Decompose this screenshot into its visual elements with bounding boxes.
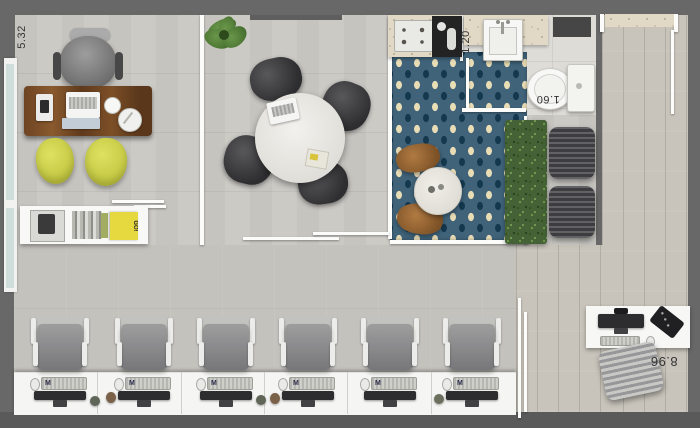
wall-corridor-divider <box>596 15 602 245</box>
desk-divider <box>181 372 182 414</box>
dimension-bath-width: 1.20 <box>459 22 473 62</box>
entry-door-leaf <box>671 30 674 114</box>
desk-divider <box>97 372 98 414</box>
desk-divider <box>347 372 348 414</box>
faucet-handle-left <box>496 20 500 24</box>
outer-wall-right <box>688 0 700 428</box>
monitor-2 <box>118 391 170 400</box>
vertical-garden-hedge <box>505 120 547 244</box>
monitor-stand-1 <box>53 400 67 407</box>
desk-plant-small <box>90 396 100 406</box>
floor-plan: 5.32 GO! <box>0 0 700 428</box>
dimension-plan-width: 8.96 <box>640 354 688 368</box>
entry-threshold <box>605 14 674 27</box>
entry-door-post-right <box>674 14 678 32</box>
monitor-3 <box>200 391 252 400</box>
book-green <box>101 213 108 238</box>
desk-ornament <box>270 393 280 404</box>
window-glass-lower <box>6 208 14 288</box>
desk-phone-screen <box>40 100 49 113</box>
outer-wall-left-bottom <box>0 288 14 412</box>
laptop-keyboard <box>69 97 97 109</box>
monitor-stand-4 <box>301 400 315 407</box>
plant-center <box>219 30 229 40</box>
mouse-3 <box>196 378 206 391</box>
monitor-5 <box>364 391 416 400</box>
lounge-pouf-2 <box>549 186 595 238</box>
desk-plant-small <box>256 395 266 405</box>
desk-plant-small <box>434 394 444 404</box>
outer-wall-left-top <box>0 0 15 62</box>
cafe-cup-1 <box>428 186 435 193</box>
desk-ornament <box>106 392 116 403</box>
exec-door-panel-a <box>112 200 164 203</box>
keyboard-3: M <box>207 377 253 390</box>
monitor-stand-3 <box>219 400 233 407</box>
wall-exec-meeting <box>200 15 204 245</box>
mouse-2 <box>114 378 124 391</box>
reception-monitor-stand <box>614 328 628 334</box>
cafe-cup-2 <box>438 184 444 190</box>
reception-monitor <box>598 314 644 328</box>
wall-bathroom-south <box>462 108 526 112</box>
keyboard-1: M <box>41 377 87 390</box>
keyboard-4: M <box>289 377 335 390</box>
office-sliding-door-b <box>524 312 527 412</box>
bathroom-door-leaf <box>466 58 469 108</box>
entry-door-post-left <box>600 14 604 32</box>
bathroom-niche <box>553 17 591 37</box>
monitor-stand-5 <box>383 400 397 407</box>
bottle-tall <box>447 28 456 50</box>
faucet-handle-right <box>506 20 510 24</box>
mouse-5 <box>360 378 370 391</box>
books-row <box>72 211 102 239</box>
dimension-room-width: 5.32 <box>15 17 29 57</box>
monitor-stand-2 <box>137 400 151 407</box>
keyboard-5: M <box>371 377 417 390</box>
executive-chair-arm-right <box>115 52 123 80</box>
executive-chair <box>60 36 116 88</box>
beam-meeting-room <box>250 15 342 20</box>
desk-divider <box>264 372 265 414</box>
meeting-door-panel-b <box>313 232 389 235</box>
desk-documents <box>62 118 100 129</box>
book-box-yellow: GO! <box>110 212 138 240</box>
toilet-flush-button <box>576 83 582 89</box>
office-sliding-door-a <box>518 298 521 418</box>
window-glass-upper <box>6 64 14 200</box>
monitor-4 <box>282 391 334 400</box>
desk-divider <box>431 372 432 414</box>
outer-wall-top <box>0 0 700 15</box>
meeting-door-panel-a <box>243 237 339 240</box>
printer-tray <box>38 214 55 234</box>
dimension-bath-length: 1.60 <box>528 92 568 106</box>
faucet <box>501 22 504 34</box>
meeting-sticky-note <box>310 153 319 160</box>
cooktop <box>394 20 434 52</box>
executive-chair-arm-left <box>53 52 61 80</box>
coffee-mug <box>104 97 121 114</box>
keyboard-2: M <box>125 377 171 390</box>
monitor-1 <box>34 391 86 400</box>
mouse-1 <box>30 378 40 391</box>
lounge-pouf-1 <box>549 127 595 179</box>
monitor-stand-6 <box>465 400 479 407</box>
monitor-6 <box>446 391 498 400</box>
keyboard-6: M <box>453 377 499 390</box>
mouse-4 <box>278 378 288 391</box>
mouse-6 <box>442 378 452 391</box>
bottle-round <box>437 22 446 31</box>
cafe-table <box>414 167 462 215</box>
